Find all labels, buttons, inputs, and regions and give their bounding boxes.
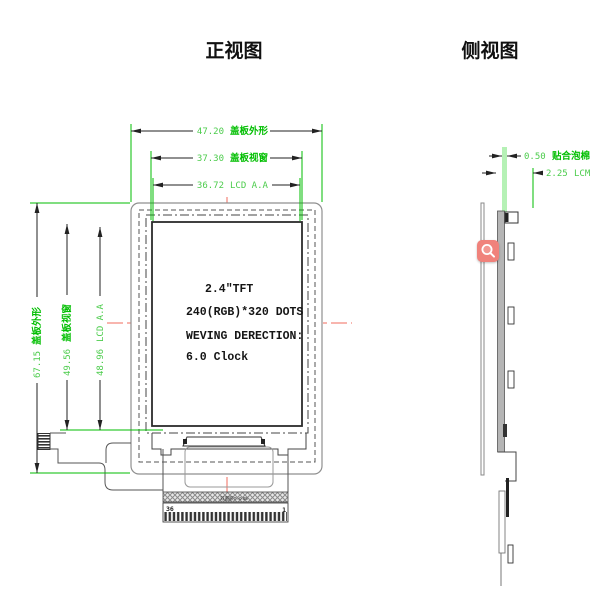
dim-label: LCM — [574, 169, 591, 179]
side-view: 0.50 贴合泡棉 2.25 LCM — [481, 147, 591, 586]
dimension-top-window-width: 37.30 盖板视窗 — [151, 152, 302, 164]
pin-number-first: 36 — [166, 505, 174, 513]
panel-viewing-direction-text: WEVING DERECTION: — [186, 330, 303, 343]
dim-value: 36.72 — [197, 181, 224, 191]
magnifier-zoom-button[interactable] — [477, 240, 499, 262]
pin-strip — [164, 512, 287, 521]
fpc-stiffener: 双面胶T=0.05 — [163, 492, 288, 502]
dim-label: LCD A.A — [96, 303, 106, 342]
dim-value: 2.25 — [546, 169, 568, 179]
tape-label: 双面胶T=0.05 — [220, 495, 248, 502]
magnifier-icon — [479, 242, 497, 260]
dimension-top-lcd-aa-width: 36.72 LCD A.A — [153, 181, 300, 191]
dim-value: 49.56 — [63, 349, 73, 376]
top-component-hatch — [506, 213, 509, 222]
dim-value: 48.96 — [96, 349, 106, 376]
fpc-fold-dark — [506, 478, 509, 517]
rear-component-dark — [503, 424, 507, 437]
fpc-side — [499, 491, 505, 553]
lcm-bottom-step — [498, 452, 516, 481]
dim-label: 盖板外形 — [31, 306, 43, 345]
dim-label: 盖板外形 — [230, 125, 269, 137]
dim-value: 47.20 — [197, 127, 224, 137]
foam-layer-highlight — [502, 147, 507, 212]
dimension-left-window-height: 49.56 盖板视窗 — [61, 224, 73, 430]
front-view-title: 正视图 — [205, 39, 262, 62]
dim-label: 贴合泡棉 — [551, 150, 591, 162]
dimension-top-cover-width: 47.20 盖板外形 — [131, 125, 322, 137]
dimension-left-cover-height: 67.15 盖板外形 — [31, 203, 43, 473]
fpc-pin-connector: 36 1 — [163, 503, 288, 522]
panel-resolution-text: 240(RGB)*320 DOTS — [186, 306, 303, 319]
dim-value: 37.30 — [197, 154, 224, 164]
dim-label: 盖板视窗 — [61, 303, 73, 342]
front-view: 双面胶T=0.05 36 1 — [30, 124, 352, 522]
dim-value: 0.50 — [524, 152, 546, 162]
dim-label: LCD A.A — [230, 181, 269, 191]
technical-drawing: 正视图 侧视图 双面胶 — [0, 0, 600, 600]
side-view-title: 侧视图 — [461, 39, 518, 62]
dimension-left-lcd-aa-height: 48.96 LCD A.A — [96, 227, 106, 430]
panel-size-text: 2.4"TFT — [205, 283, 253, 296]
dim-label: 盖板视窗 — [230, 152, 269, 164]
dimension-lcm-thickness: 2.25 LCM — [482, 169, 591, 179]
driver-ic — [183, 437, 265, 446]
pin-number-last: 1 — [282, 506, 286, 514]
dim-value: 67.15 — [33, 351, 43, 378]
panel-clock-text: 6.0 Clock — [186, 351, 248, 364]
drawing-canvas: 正视图 侧视图 双面胶 — [0, 0, 600, 600]
